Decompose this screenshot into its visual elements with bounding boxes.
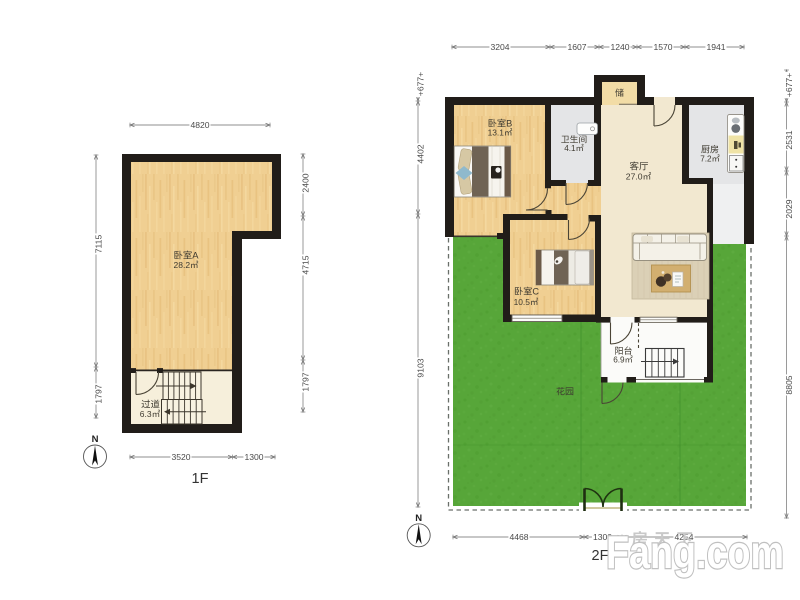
svg-text:2531: 2531	[784, 130, 794, 149]
svg-text:6.3: 6.3	[140, 409, 152, 419]
svg-text:7115: 7115	[93, 235, 103, 254]
svg-text:13.1: 13.1	[488, 128, 505, 138]
svg-text:2400: 2400	[300, 173, 310, 192]
svg-text:8805: 8805	[784, 375, 794, 394]
svg-text:27.0: 27.0	[626, 172, 643, 182]
svg-text:3204: 3204	[490, 42, 509, 52]
svg-text:+677+: +677+	[415, 72, 425, 96]
svg-text:7.2: 7.2	[700, 155, 712, 164]
svg-text:1941: 1941	[706, 42, 725, 52]
svg-text:10.5: 10.5	[514, 297, 531, 307]
svg-text:1240: 1240	[610, 42, 629, 52]
svg-text:4715: 4715	[300, 255, 310, 274]
svg-text:1300: 1300	[244, 452, 263, 462]
svg-text:4468: 4468	[509, 532, 528, 542]
svg-text:1570: 1570	[653, 42, 672, 52]
svg-text:Fang.com: Fang.com	[606, 526, 784, 578]
svg-text:1797: 1797	[300, 372, 310, 391]
svg-text:1797: 1797	[93, 384, 103, 403]
svg-text:A: A	[192, 250, 199, 261]
svg-text:6.9: 6.9	[613, 356, 625, 365]
svg-text:1607: 1607	[567, 42, 586, 52]
svg-text:1F: 1F	[192, 471, 209, 487]
svg-text:4820: 4820	[190, 120, 209, 130]
svg-text:4.1: 4.1	[564, 144, 576, 153]
svg-text:28.2: 28.2	[174, 260, 191, 270]
svg-text:B: B	[506, 119, 512, 129]
svg-text:3520: 3520	[171, 452, 190, 462]
svg-text:C: C	[532, 287, 539, 297]
svg-text:9103: 9103	[415, 358, 425, 377]
svg-text:N: N	[415, 513, 422, 524]
svg-text:4402: 4402	[415, 144, 425, 163]
svg-text:N: N	[92, 434, 99, 445]
svg-text:2029: 2029	[784, 199, 794, 218]
svg-text:+677+: +677+	[784, 73, 794, 97]
